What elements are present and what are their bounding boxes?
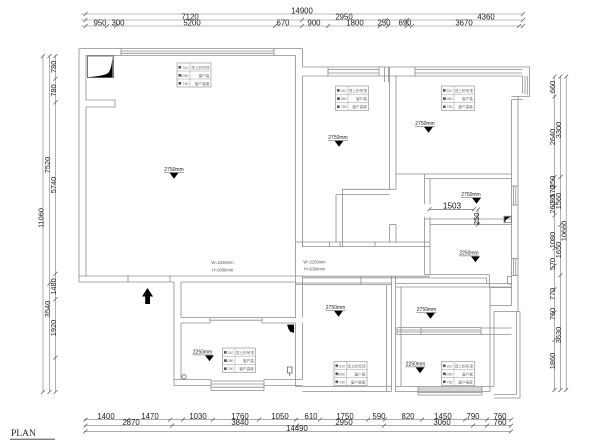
svg-text:900: 900 bbox=[307, 19, 321, 28]
svg-text:1050: 1050 bbox=[226, 359, 234, 363]
svg-text:顶上的吊顶: 顶上的吊顶 bbox=[347, 363, 366, 368]
svg-text:1050: 1050 bbox=[337, 372, 345, 376]
svg-text:690: 690 bbox=[398, 19, 412, 28]
svg-text:窗户高: 窗户高 bbox=[462, 96, 473, 101]
svg-text:顶上的吊顶: 顶上的吊顶 bbox=[455, 88, 474, 93]
svg-text:590: 590 bbox=[372, 412, 386, 421]
svg-text:2750mm: 2750mm bbox=[164, 167, 183, 173]
svg-text:310: 310 bbox=[183, 66, 189, 70]
svg-text:780: 780 bbox=[49, 61, 58, 73]
svg-text:310: 310 bbox=[447, 89, 453, 93]
svg-text:窗户高度: 窗户高度 bbox=[351, 379, 366, 384]
svg-text:1920: 1920 bbox=[49, 320, 58, 336]
svg-text:1050: 1050 bbox=[445, 372, 453, 376]
svg-text:3060: 3060 bbox=[433, 418, 451, 427]
svg-text:610: 610 bbox=[304, 412, 318, 421]
svg-text:250: 250 bbox=[472, 213, 481, 226]
svg-text:310: 310 bbox=[447, 364, 453, 368]
svg-text:2950: 2950 bbox=[335, 418, 353, 427]
svg-text:10660: 10660 bbox=[560, 221, 569, 242]
svg-text:1030: 1030 bbox=[189, 412, 207, 421]
svg-text:窗户高: 窗户高 bbox=[354, 371, 365, 376]
svg-text:790: 790 bbox=[466, 412, 480, 421]
svg-text:2750mm: 2750mm bbox=[326, 305, 345, 311]
svg-text:3540: 3540 bbox=[43, 301, 52, 317]
svg-text:顶上的吊顶: 顶上的吊顶 bbox=[191, 65, 210, 70]
svg-text:7520: 7520 bbox=[43, 157, 52, 173]
svg-text:2750mm: 2750mm bbox=[417, 307, 436, 313]
svg-text:窗户高: 窗户高 bbox=[462, 371, 473, 376]
svg-text:300: 300 bbox=[111, 19, 125, 28]
svg-text:3670: 3670 bbox=[455, 19, 473, 28]
svg-text:11060: 11060 bbox=[37, 208, 46, 228]
svg-text:2750mm: 2750mm bbox=[461, 192, 480, 198]
svg-text:770: 770 bbox=[548, 288, 557, 300]
svg-text:1050: 1050 bbox=[181, 74, 189, 78]
svg-text:2250mm: 2250mm bbox=[406, 362, 425, 368]
svg-text:窗户高度: 窗户高度 bbox=[458, 379, 473, 384]
svg-text:1503: 1503 bbox=[443, 201, 462, 210]
svg-text:310: 310 bbox=[228, 351, 234, 355]
svg-text:310: 310 bbox=[341, 89, 347, 93]
svg-text:750: 750 bbox=[228, 367, 234, 371]
svg-text:1800: 1800 bbox=[346, 19, 364, 28]
svg-text:2250mm: 2250mm bbox=[193, 350, 212, 356]
svg-text:PLAN: PLAN bbox=[11, 429, 36, 439]
svg-text:窗户高度: 窗户高度 bbox=[239, 366, 254, 371]
svg-text:3300: 3300 bbox=[554, 122, 563, 138]
svg-text:750: 750 bbox=[339, 380, 345, 384]
svg-text:950: 950 bbox=[93, 19, 107, 28]
svg-text:820: 820 bbox=[401, 412, 415, 421]
svg-text:3840: 3840 bbox=[231, 418, 249, 427]
svg-text:14490: 14490 bbox=[286, 424, 308, 433]
svg-text:2750mm: 2750mm bbox=[415, 121, 434, 127]
svg-text:760: 760 bbox=[493, 418, 507, 427]
svg-text:750: 750 bbox=[341, 105, 347, 109]
svg-text:1860: 1860 bbox=[548, 353, 557, 369]
svg-text:250: 250 bbox=[377, 19, 391, 28]
svg-text:4360: 4360 bbox=[477, 13, 495, 22]
svg-text:窗户高度: 窗户高度 bbox=[195, 81, 210, 86]
svg-text:H=2000mm: H=2000mm bbox=[212, 267, 234, 272]
svg-text:1400: 1400 bbox=[97, 412, 115, 421]
svg-text:1650: 1650 bbox=[554, 242, 563, 258]
svg-text:750: 750 bbox=[183, 82, 189, 86]
svg-text:窗户高: 窗户高 bbox=[198, 73, 209, 78]
svg-text:顶上的吊顶: 顶上的吊顶 bbox=[455, 363, 474, 368]
svg-text:750: 750 bbox=[447, 105, 453, 109]
svg-text:1480: 1480 bbox=[49, 278, 58, 294]
svg-text:窗户高: 窗户高 bbox=[243, 358, 254, 363]
svg-text:1050: 1050 bbox=[445, 97, 453, 101]
svg-text:窗户高度: 窗户高度 bbox=[458, 104, 473, 109]
svg-text:1560: 1560 bbox=[554, 193, 563, 209]
svg-text:5200: 5200 bbox=[183, 19, 201, 28]
svg-text:顶上的吊顶: 顶上的吊顶 bbox=[349, 88, 368, 93]
svg-text:H=2000mm: H=2000mm bbox=[304, 267, 326, 272]
svg-text:2250mm: 2250mm bbox=[459, 251, 478, 257]
svg-text:5740: 5740 bbox=[49, 177, 58, 193]
svg-text:2750mm: 2750mm bbox=[328, 135, 347, 141]
svg-text:2870: 2870 bbox=[122, 418, 140, 427]
svg-text:W=2250mm: W=2250mm bbox=[303, 260, 326, 265]
svg-text:窗户高度: 窗户高度 bbox=[352, 104, 367, 109]
svg-text:750: 750 bbox=[447, 380, 453, 384]
svg-text:670: 670 bbox=[276, 19, 290, 28]
svg-text:570: 570 bbox=[548, 258, 557, 270]
svg-text:3630: 3630 bbox=[554, 327, 563, 343]
svg-text:310: 310 bbox=[339, 364, 345, 368]
svg-text:1470: 1470 bbox=[141, 412, 159, 421]
svg-text:顶上的吊顶: 顶上的吊顶 bbox=[236, 350, 255, 355]
svg-text:760: 760 bbox=[548, 308, 557, 320]
svg-text:窗户高: 窗户高 bbox=[356, 96, 367, 101]
svg-text:1050: 1050 bbox=[271, 412, 289, 421]
svg-text:660: 660 bbox=[548, 81, 557, 93]
svg-text:1050: 1050 bbox=[339, 97, 347, 101]
svg-text:14900: 14900 bbox=[291, 7, 313, 16]
svg-text:780: 780 bbox=[49, 84, 58, 96]
svg-text:W=2250mm: W=2250mm bbox=[211, 260, 234, 265]
